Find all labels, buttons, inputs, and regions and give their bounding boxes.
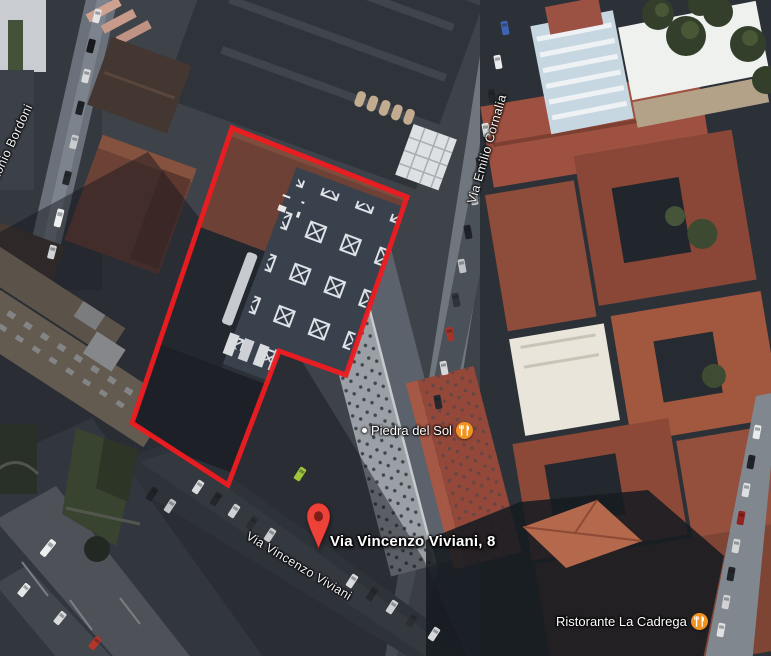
poi-label: Piedra del Sol xyxy=(371,423,452,438)
satellite-imagery xyxy=(0,0,771,656)
poi-dot xyxy=(362,428,367,433)
pin-icon xyxy=(306,502,331,550)
restaurant-icon xyxy=(456,422,473,439)
map-pin[interactable] xyxy=(306,502,331,550)
address-label: Via Vincenzo Viviani, 8 xyxy=(330,533,496,550)
poi-piedra-del-sol[interactable]: Piedra del Sol xyxy=(362,422,473,439)
poi-ristorante-la-cadrega[interactable]: Ristorante La Cadrega xyxy=(556,613,708,630)
map-canvas[interactable]: Antonio Bordoni Via Emilio Cornalia Via … xyxy=(0,0,771,656)
poi-label: Ristorante La Cadrega xyxy=(556,614,687,629)
restaurant-icon xyxy=(691,613,708,630)
